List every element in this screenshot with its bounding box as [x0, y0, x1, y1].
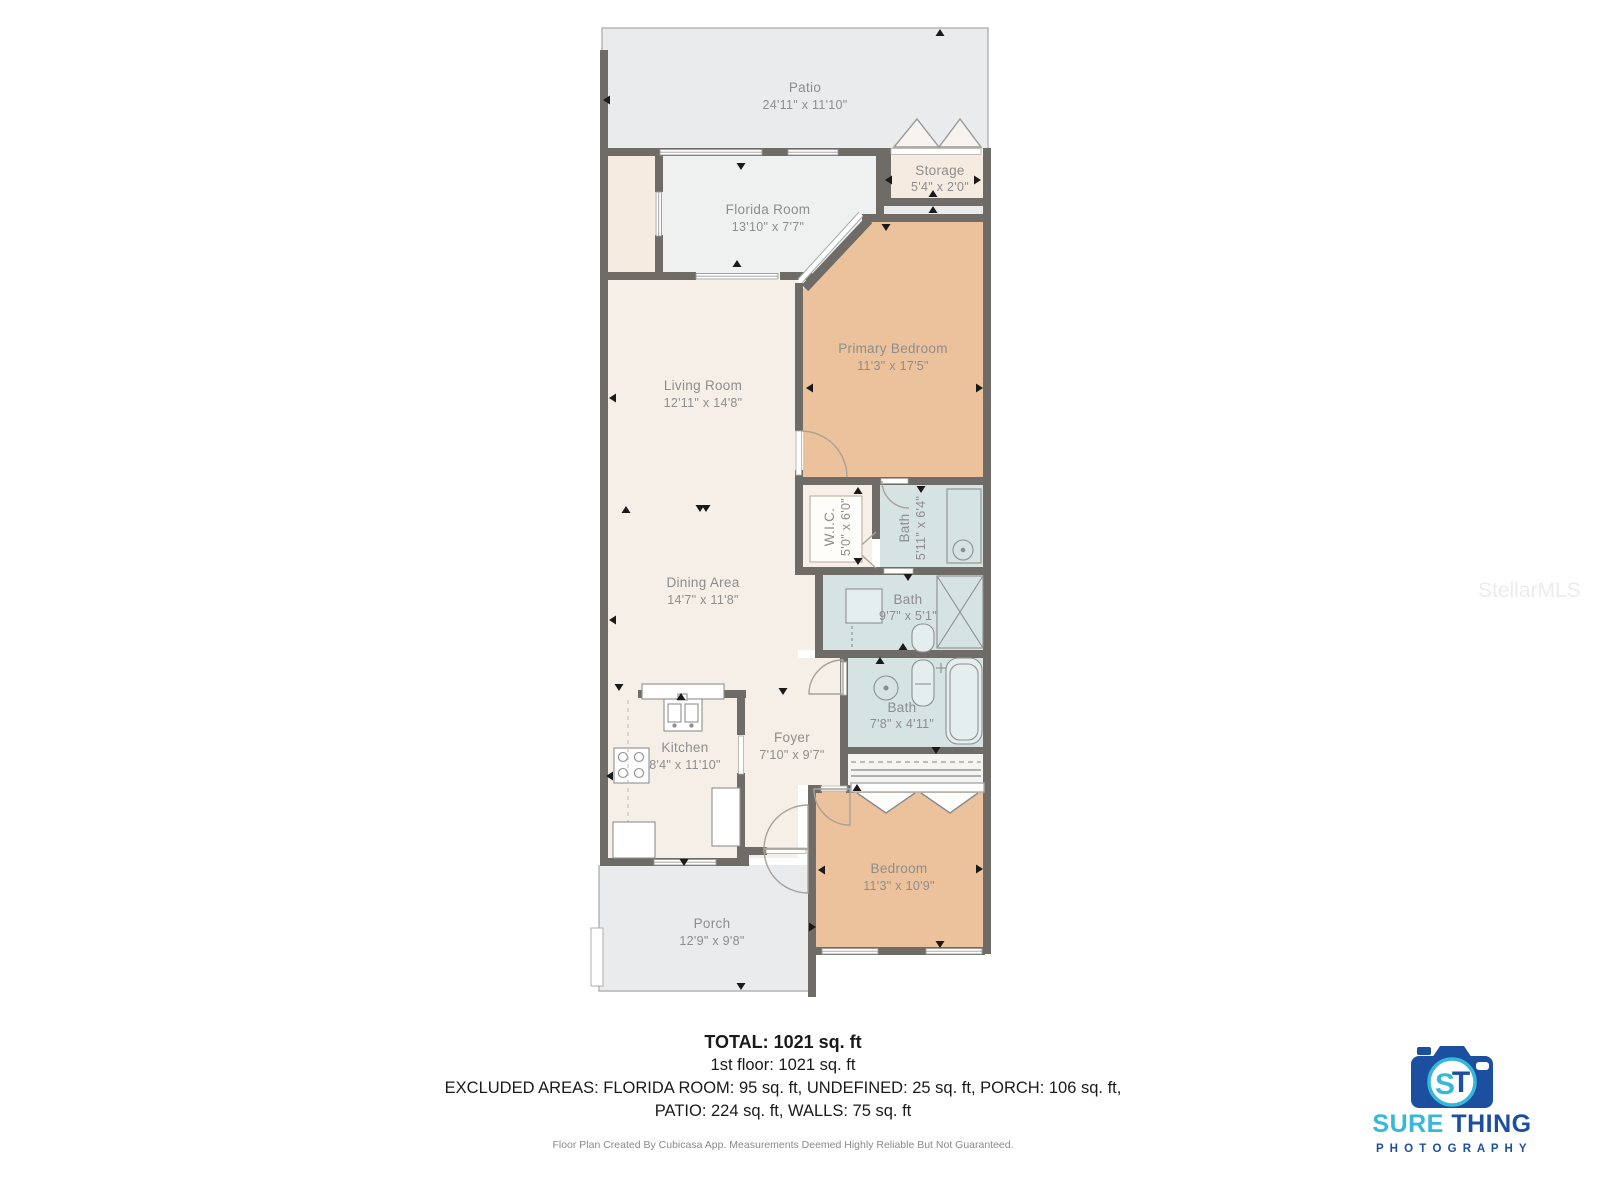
excluded-areas-line1: EXCLUDED AREAS: FLORIDA ROOM: 95 sq. ft,… [0, 1077, 1566, 1100]
bedroom-closet-track [851, 783, 984, 792]
bathtub-icon [946, 658, 982, 744]
svg-text:Dining Area: Dining Area [666, 575, 739, 590]
svg-text:12'11" x 14'8": 12'11" x 14'8" [664, 396, 743, 410]
svg-text:5'4" x 2'0": 5'4" x 2'0" [911, 180, 969, 194]
svg-text:Bedroom: Bedroom [871, 861, 928, 876]
excluded-areas-line2: PATIO: 224 sq. ft, WALLS: 75 sq. ft [0, 1100, 1566, 1123]
svg-text:Foyer: Foyer [774, 730, 810, 745]
porch-step [591, 928, 603, 986]
cabinet-icon [846, 589, 882, 623]
svg-text:9'7" x 5'1": 9'7" x 5'1" [879, 609, 937, 623]
refrigerator-icon [613, 822, 655, 858]
svg-text:11'3" x 10'9": 11'3" x 10'9" [863, 879, 935, 893]
undefined-room-floor [608, 156, 655, 272]
svg-text:W.I.C.: W.I.C. [822, 508, 837, 547]
area-summary: TOTAL: 1021 sq. ft 1st floor: 1021 sq. f… [0, 1030, 1566, 1151]
svg-text:5'0" x 6'0": 5'0" x 6'0" [839, 498, 853, 556]
first-floor-area-text: 1st floor: 1021 sq. ft [0, 1054, 1566, 1077]
bath-upper-floor [880, 485, 983, 567]
svg-text:Bath: Bath [897, 514, 912, 543]
svg-text:Living Room: Living Room [664, 378, 742, 393]
hall-closet-floor [848, 753, 983, 785]
svg-text:Storage: Storage [915, 163, 964, 178]
svg-text:Patio: Patio [789, 80, 821, 95]
svg-text:7'8" x 4'11": 7'8" x 4'11" [870, 717, 934, 731]
svg-text:Porch: Porch [694, 916, 731, 931]
disclaimer-text: Floor Plan Created By Cubicasa App. Meas… [0, 1139, 1566, 1151]
svg-text:Bath: Bath [894, 592, 923, 607]
toilet-icon [912, 624, 934, 652]
svg-text:Primary Bedroom: Primary Bedroom [838, 341, 948, 356]
pantry-counter [712, 788, 740, 846]
svg-text:Florida Room: Florida Room [726, 202, 811, 217]
svg-text:5'11" x 6'4": 5'11" x 6'4" [914, 496, 928, 560]
svg-text:Bath: Bath [888, 700, 917, 715]
svg-text:7'10" x 9'7": 7'10" x 9'7" [759, 748, 824, 762]
svg-text:14'7" x 11'8": 14'7" x 11'8" [667, 593, 739, 607]
svg-text:Kitchen: Kitchen [661, 740, 708, 755]
svg-text:11'3" x 17'5": 11'3" x 17'5" [857, 359, 929, 373]
svg-text:24'11" x 11'10": 24'11" x 11'10" [762, 98, 847, 112]
floor-plan-page: Patio 24'11" x 11'10" Florida Room 13'10… [0, 0, 1600, 1200]
total-area-text: TOTAL: 1021 sq. ft [0, 1030, 1566, 1054]
stove-icon [614, 748, 649, 783]
svg-text:13'10" x 7'7": 13'10" x 7'7" [732, 220, 804, 234]
floor-plan-drawing: Patio 24'11" x 11'10" Florida Room 13'10… [0, 0, 1600, 1200]
stellar-mls-watermark: StellarMLS [1478, 579, 1581, 602]
svg-text:8'4" x 11'10": 8'4" x 11'10" [649, 758, 721, 772]
svg-text:12'9" x 9'8": 12'9" x 9'8" [679, 934, 744, 948]
